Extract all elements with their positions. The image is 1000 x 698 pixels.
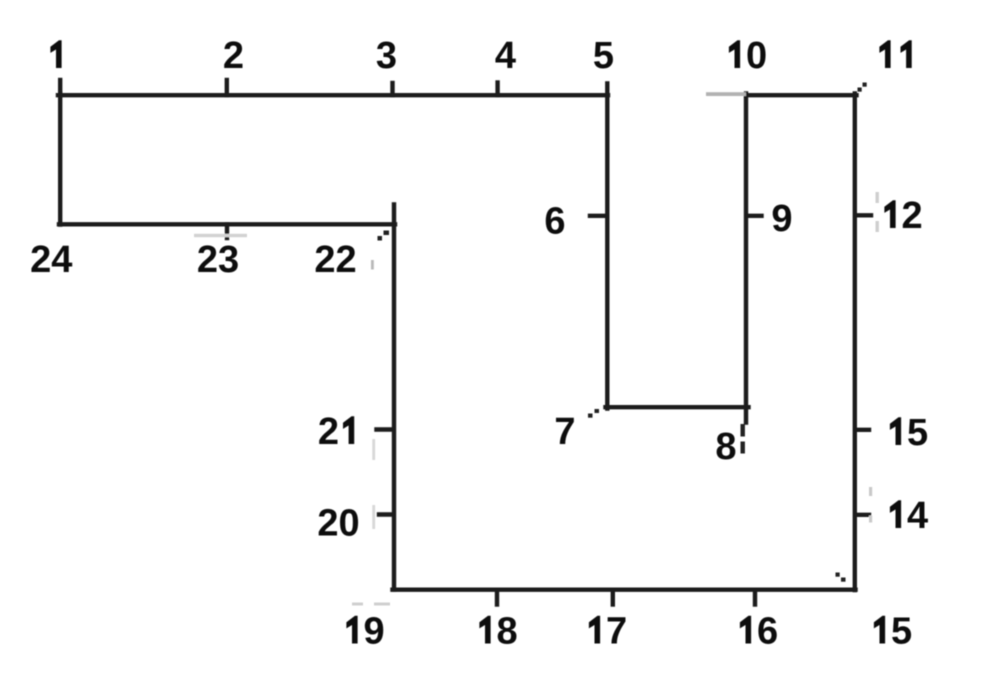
svg-text:3: 3: [376, 35, 397, 77]
svg-text:5: 5: [891, 611, 912, 653]
svg-text:8: 8: [496, 611, 517, 653]
svg-text:22: 22: [314, 239, 356, 281]
svg-text:6: 6: [757, 611, 778, 653]
svg-text:5: 5: [593, 35, 614, 77]
svg-text:7: 7: [606, 611, 627, 653]
svg-text:2: 2: [223, 35, 244, 77]
svg-text:6: 6: [544, 201, 565, 243]
svg-text:9: 9: [363, 611, 384, 653]
svg-text:7: 7: [554, 411, 575, 453]
svg-text:23: 23: [197, 239, 239, 281]
svg-text:8: 8: [715, 426, 736, 468]
svg-text:2: 2: [318, 411, 339, 453]
svg-text:20: 20: [317, 503, 359, 545]
svg-text:4: 4: [495, 35, 516, 77]
svg-text:5: 5: [907, 412, 928, 454]
svg-text:9: 9: [771, 198, 792, 240]
svg-text:4: 4: [907, 495, 928, 537]
svg-text:0: 0: [746, 35, 767, 77]
svg-text:2: 2: [901, 195, 922, 237]
svg-text:24: 24: [30, 239, 72, 281]
